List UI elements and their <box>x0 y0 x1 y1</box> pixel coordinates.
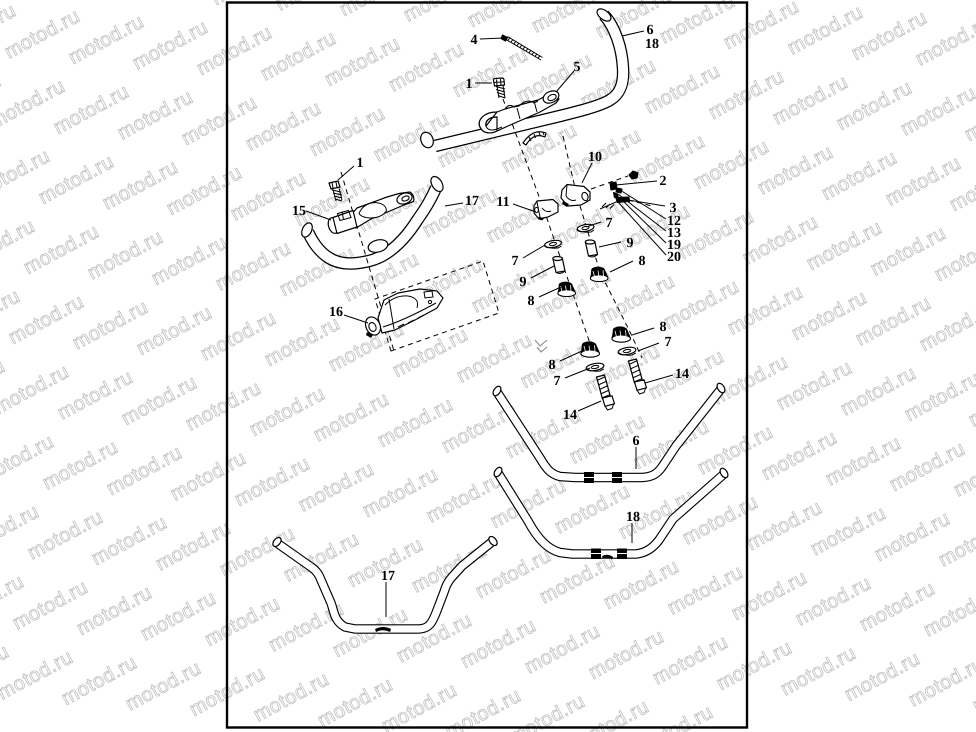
svg-text:6: 6 <box>647 23 654 38</box>
svg-text:4: 4 <box>471 33 478 48</box>
svg-text:20: 20 <box>667 250 681 265</box>
svg-text:1: 1 <box>357 156 364 171</box>
svg-text:8: 8 <box>660 320 667 335</box>
svg-text:17: 17 <box>381 569 395 584</box>
svg-text:7: 7 <box>665 335 672 350</box>
svg-text:1: 1 <box>466 77 473 92</box>
svg-text:8: 8 <box>639 254 646 269</box>
svg-text:5: 5 <box>574 60 581 75</box>
svg-text:18: 18 <box>626 510 640 525</box>
svg-text:9: 9 <box>627 236 634 251</box>
svg-text:18: 18 <box>645 37 659 52</box>
svg-text:11: 11 <box>496 195 509 210</box>
svg-text:7: 7 <box>554 374 561 389</box>
svg-text:17: 17 <box>465 194 479 209</box>
svg-text:2: 2 <box>660 174 667 189</box>
svg-text:8: 8 <box>549 358 556 373</box>
svg-text:14: 14 <box>563 408 577 423</box>
svg-text:9: 9 <box>520 275 527 290</box>
svg-text:14: 14 <box>675 367 689 382</box>
svg-text:7: 7 <box>606 216 613 231</box>
svg-text:6: 6 <box>633 434 640 449</box>
svg-text:8: 8 <box>528 294 535 309</box>
svg-text:10: 10 <box>588 150 602 165</box>
svg-text:16: 16 <box>329 305 343 320</box>
svg-text:7: 7 <box>512 254 519 269</box>
svg-text:15: 15 <box>292 204 306 219</box>
